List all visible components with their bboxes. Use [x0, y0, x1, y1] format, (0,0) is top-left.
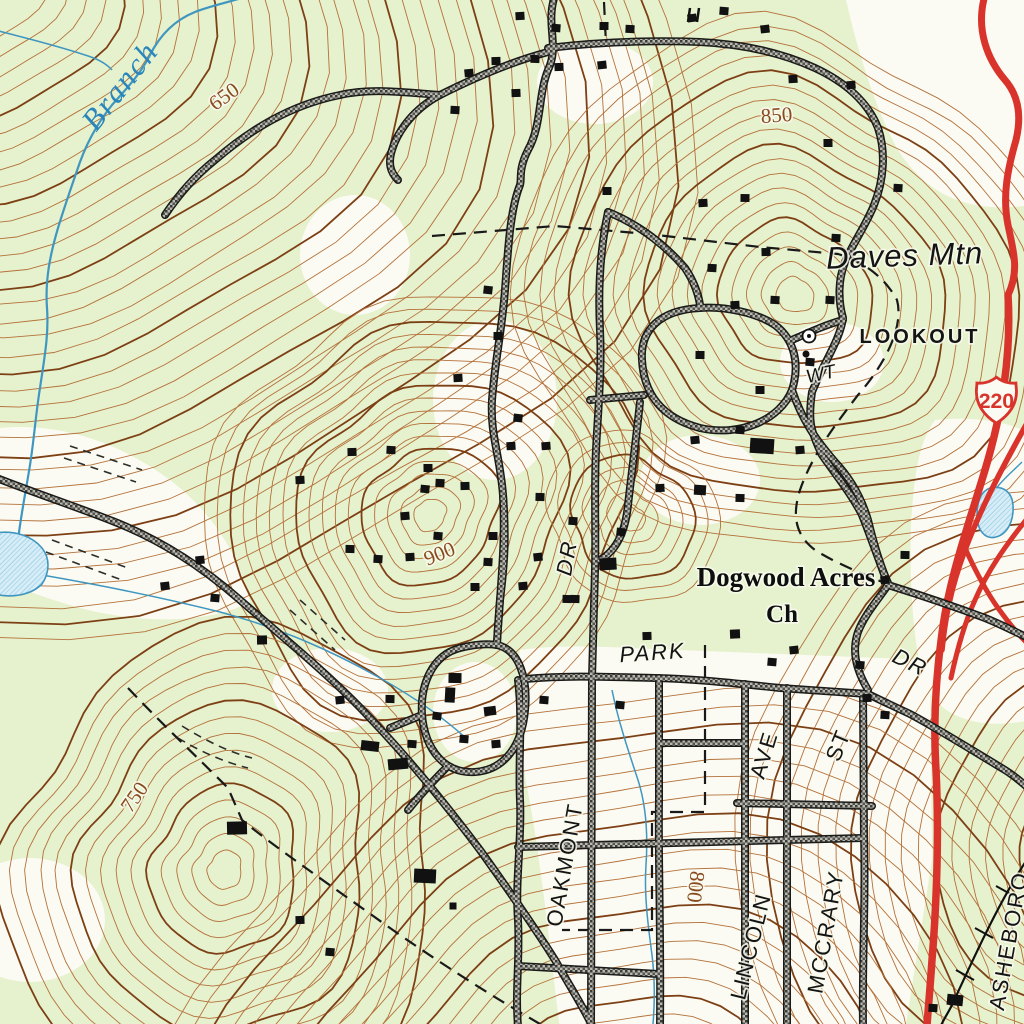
building — [735, 426, 744, 435]
building — [789, 646, 799, 655]
topo-map: Branch 650 850 900 750 800 Daves Mtn LOO… — [0, 0, 1024, 1024]
building — [414, 868, 437, 883]
building — [448, 673, 461, 683]
building — [386, 446, 395, 454]
building — [690, 436, 700, 445]
building — [730, 301, 739, 309]
building — [335, 696, 345, 705]
label-park: PARK — [619, 638, 687, 668]
building — [449, 902, 456, 909]
building — [513, 414, 523, 423]
building — [599, 558, 617, 571]
building — [533, 553, 543, 562]
building — [880, 711, 889, 719]
building — [946, 994, 963, 1007]
building — [568, 517, 577, 525]
building — [893, 184, 902, 193]
clearing — [640, 435, 760, 525]
building — [483, 558, 493, 567]
building — [825, 296, 834, 304]
label-contour-850: 850 — [760, 102, 793, 128]
building — [385, 695, 394, 703]
building — [880, 576, 890, 585]
building — [518, 582, 528, 591]
building — [459, 735, 469, 744]
building — [625, 25, 634, 33]
building — [210, 594, 220, 603]
building — [795, 446, 805, 455]
building — [707, 264, 717, 273]
building — [450, 106, 459, 114]
building — [767, 658, 777, 667]
building — [325, 948, 335, 957]
building — [361, 740, 380, 752]
building — [511, 89, 520, 97]
building — [347, 448, 356, 456]
building — [195, 556, 205, 565]
building — [160, 582, 170, 591]
building — [453, 374, 462, 383]
building — [846, 81, 856, 90]
building — [823, 139, 832, 147]
building — [770, 296, 779, 304]
label-daves-mtn: Daves Mtn — [825, 235, 983, 275]
clearing — [300, 195, 410, 315]
building — [687, 13, 697, 22]
building — [405, 553, 414, 561]
building — [597, 61, 607, 70]
building — [420, 485, 430, 494]
building — [493, 332, 502, 340]
building — [554, 63, 563, 71]
building — [484, 706, 497, 716]
road-surface — [737, 803, 872, 806]
building — [407, 740, 417, 749]
building — [788, 75, 797, 84]
building — [602, 187, 611, 195]
building — [491, 57, 500, 65]
building — [750, 438, 775, 455]
building — [562, 595, 571, 603]
building — [295, 916, 304, 924]
building — [551, 24, 561, 33]
building — [855, 661, 865, 670]
us-route-number: 220 — [979, 389, 1014, 413]
building — [928, 1004, 937, 1013]
building — [488, 532, 497, 540]
building — [862, 694, 871, 702]
building — [570, 595, 579, 603]
building — [900, 551, 909, 559]
building — [735, 494, 744, 502]
building — [435, 479, 444, 487]
building — [695, 351, 704, 359]
lookout-tower-dot — [807, 334, 811, 338]
building — [432, 711, 442, 720]
building — [655, 484, 664, 493]
building — [515, 12, 524, 21]
building — [295, 476, 304, 484]
building — [470, 583, 479, 591]
building — [227, 821, 247, 834]
building — [599, 22, 608, 30]
building — [460, 482, 469, 490]
building — [730, 629, 740, 638]
label-contour-800: 800 — [682, 870, 710, 904]
building — [373, 555, 382, 564]
building — [539, 696, 549, 705]
building — [464, 69, 474, 78]
label-lookout: LOOKOUT — [860, 326, 981, 348]
building — [400, 512, 410, 521]
building — [694, 485, 707, 496]
building — [491, 740, 501, 749]
building — [740, 194, 749, 202]
label-dogwood-acres: Dogwood Acres — [697, 562, 876, 592]
building — [506, 442, 515, 451]
building — [345, 545, 354, 553]
building — [616, 527, 626, 536]
building — [698, 199, 707, 207]
building — [642, 632, 651, 640]
building-dot — [803, 351, 810, 358]
building — [388, 758, 409, 771]
building — [530, 55, 539, 63]
building — [535, 493, 544, 501]
building — [615, 701, 625, 710]
building — [541, 442, 551, 451]
topo-map-stage: Branch 650 850 900 750 800 Daves Mtn LOO… — [0, 0, 1024, 1024]
building — [423, 464, 432, 472]
building — [756, 386, 765, 394]
building — [761, 248, 770, 256]
building — [257, 635, 267, 644]
building — [719, 7, 729, 16]
building — [445, 687, 456, 703]
building — [483, 286, 493, 295]
road-surface — [863, 694, 865, 1024]
label-church: Ch — [766, 601, 798, 628]
building — [760, 24, 770, 33]
